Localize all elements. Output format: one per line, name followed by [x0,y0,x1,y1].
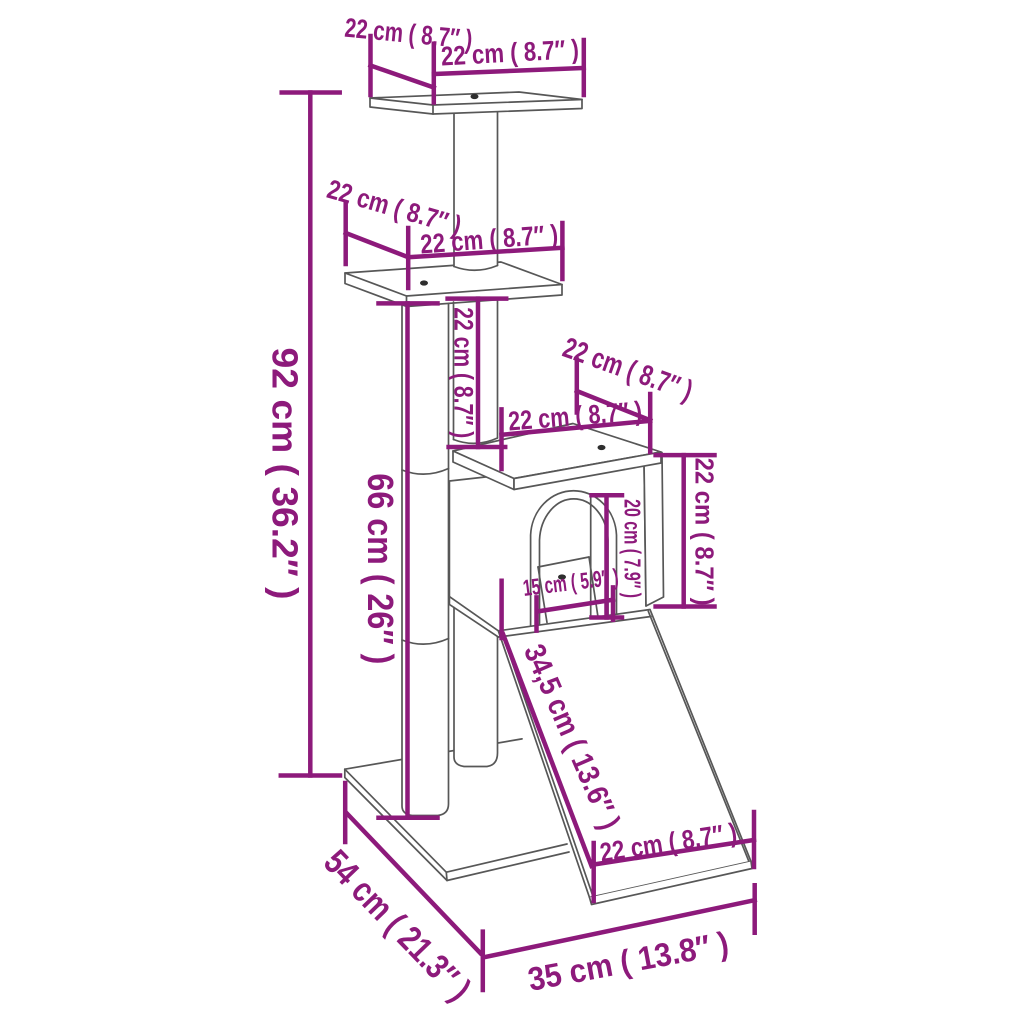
svg-text:22 cm ( 8.7″ ): 22 cm ( 8.7″ ) [449,307,479,438]
svg-text:92 cm ( 36.2″ ): 92 cm ( 36.2″ ) [265,348,306,600]
svg-text:20 cm ( 7.9″ ): 20 cm ( 7.9″ ) [620,499,646,598]
svg-text:22 cm ( 8.7″ ): 22 cm ( 8.7″ ) [689,458,719,606]
svg-text:66 cm ( 26″ ): 66 cm ( 26″ ) [360,473,401,664]
